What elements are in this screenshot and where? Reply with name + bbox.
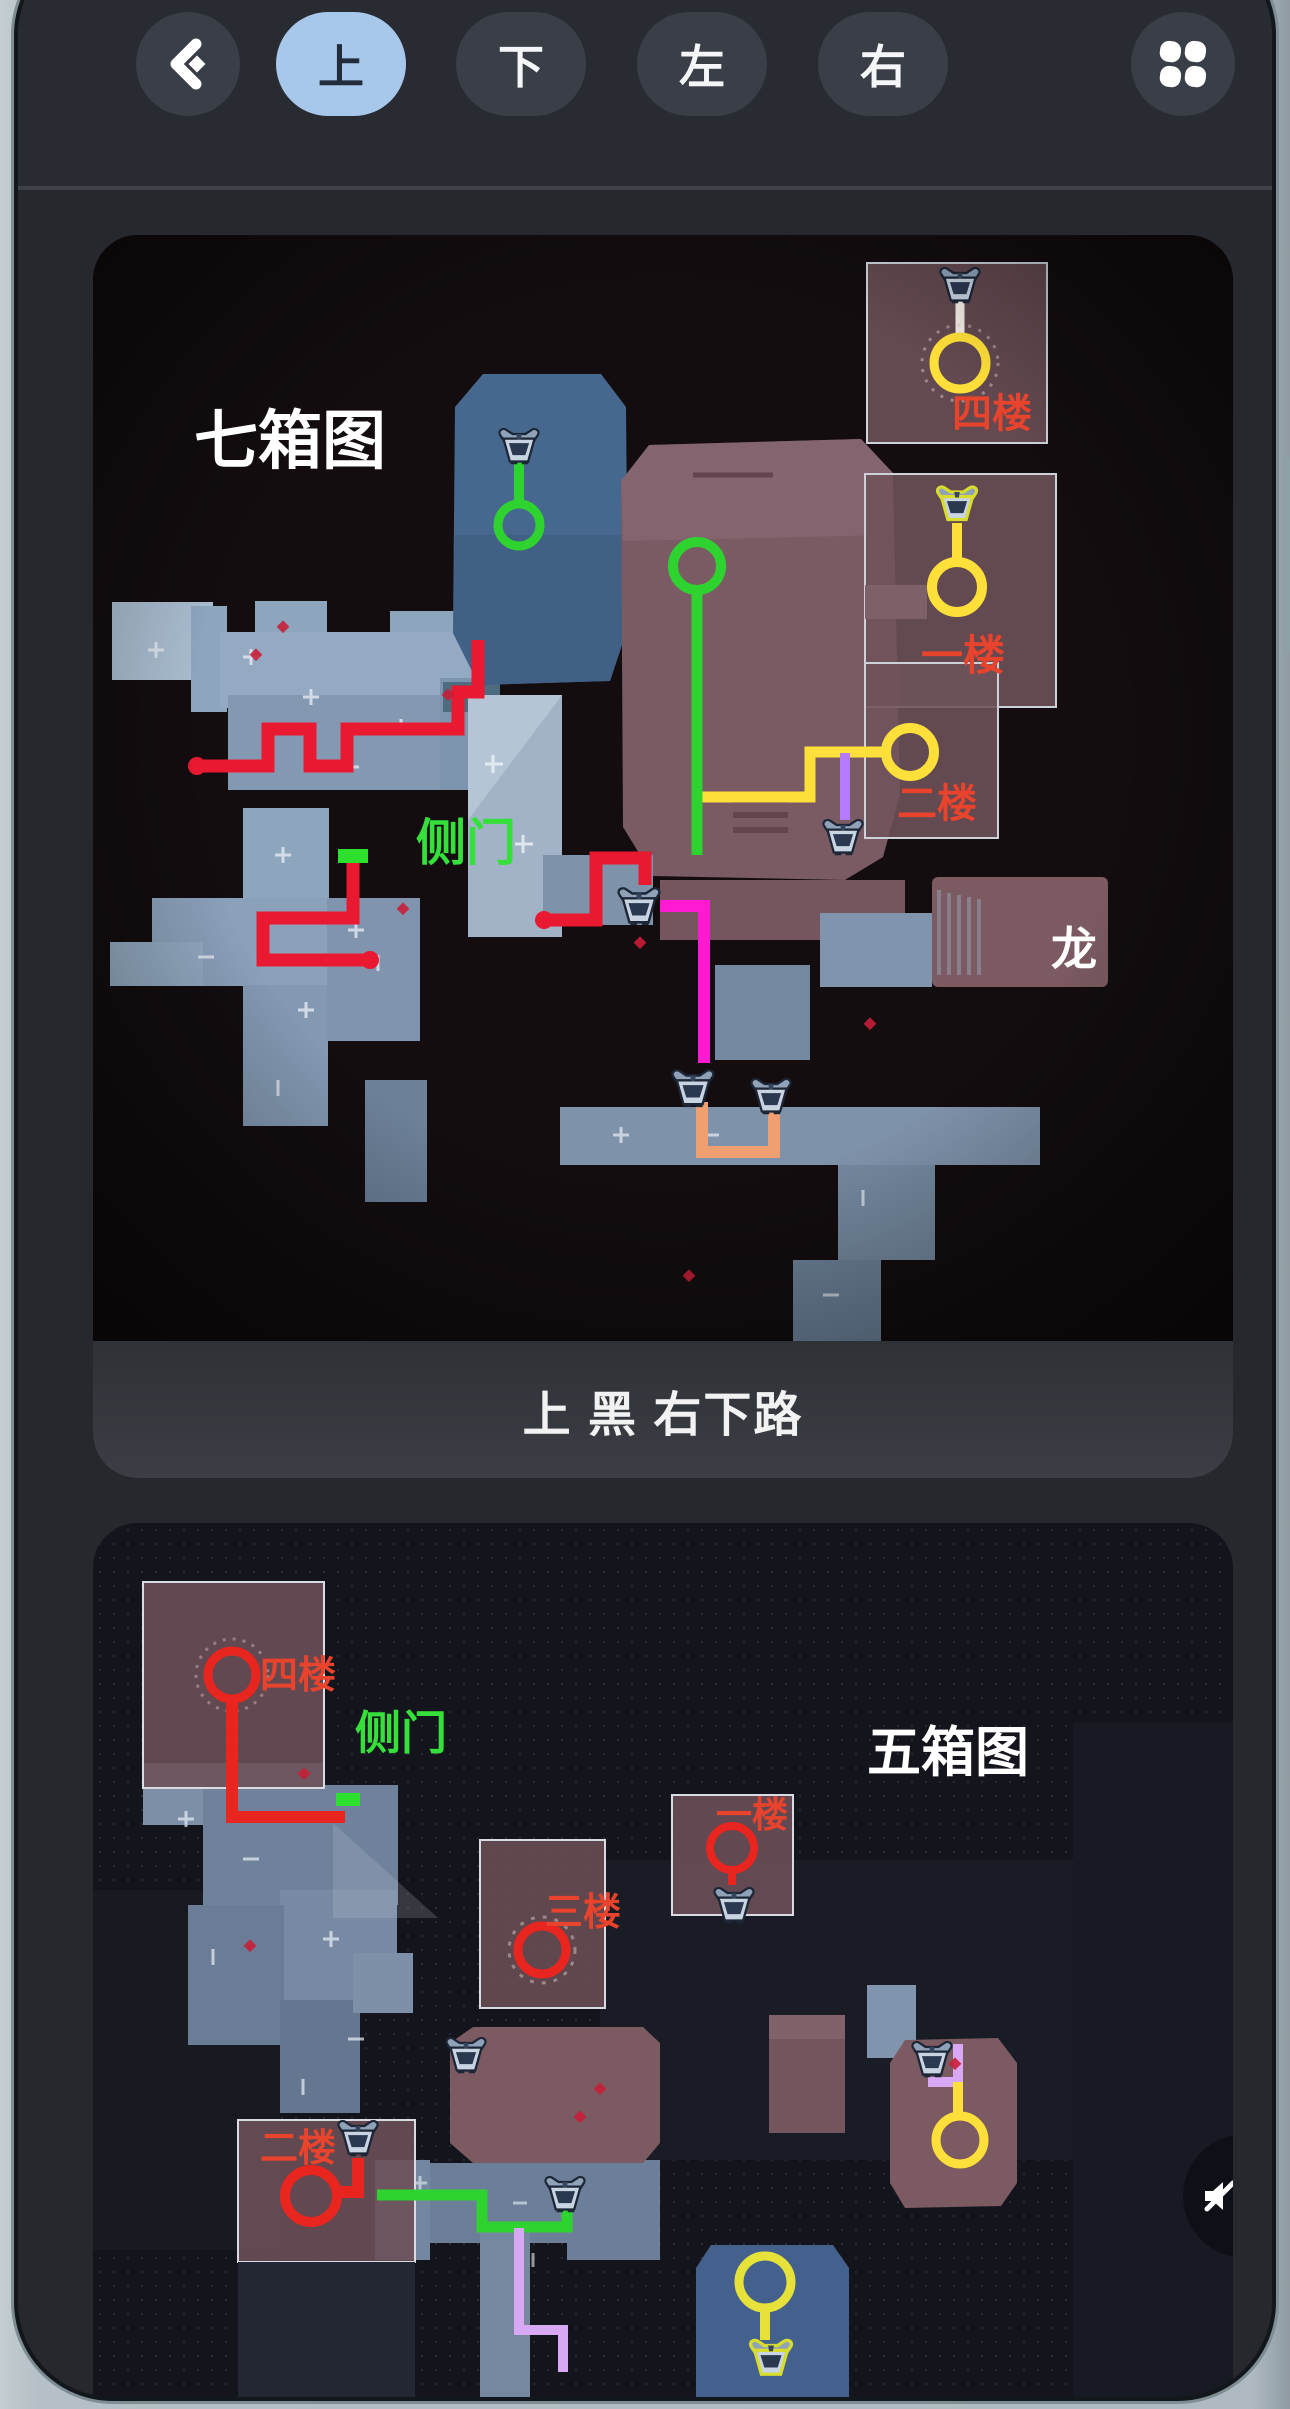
map1-side-door-label: 侧门	[416, 815, 516, 871]
five-chest-map-image: 五箱图 四楼 侧门 一楼 三楼 二楼	[93, 1523, 1233, 2397]
map2-floor3-label: 三楼	[545, 1892, 621, 1934]
map-card-seven-chest[interactable]: 七箱图 四楼 一楼 二楼 侧门 龙 上 黑 右下路	[93, 235, 1233, 1478]
power-button	[1282, 455, 1290, 655]
map2-floor1-label: 一楼	[716, 1794, 788, 1835]
map1-vignette	[93, 235, 1233, 1341]
map1-floor2-label: 二楼	[897, 782, 977, 826]
map2-title: 五箱图	[867, 1723, 1029, 1783]
map2-floor4-label: 四楼	[260, 1655, 336, 1697]
map1-floor1-label: 一楼	[921, 632, 1005, 679]
map2-inset-floor4	[143, 1582, 345, 1817]
map2-side-door-label: 侧门	[355, 1707, 447, 1759]
map2-central-building	[446, 2027, 660, 2163]
map2-blue-building	[696, 2245, 849, 2397]
map1-title: 七箱图	[194, 405, 386, 477]
map1-caption-text: 上 黑 右下路	[523, 1375, 804, 1445]
map2-floor2-label: 二楼	[260, 2128, 336, 2170]
phone-screen: 上 下 左 右	[18, 0, 1272, 2397]
seven-chest-map-image: 七箱图 四楼 一楼 二楼 侧门 龙	[93, 235, 1233, 1341]
phone-mockup: 上 下 左 右	[0, 0, 1290, 2409]
map1-caption-bar: 上 黑 右下路	[93, 1341, 1233, 1478]
map2-side-door-marker	[336, 1793, 360, 1806]
map-card-five-chest[interactable]: 五箱图 四楼 侧门 一楼 三楼 二楼	[93, 1523, 1233, 2397]
map1-dragon-label: 龙	[1051, 923, 1097, 975]
map1-floor4-label: 四楼	[952, 392, 1032, 436]
